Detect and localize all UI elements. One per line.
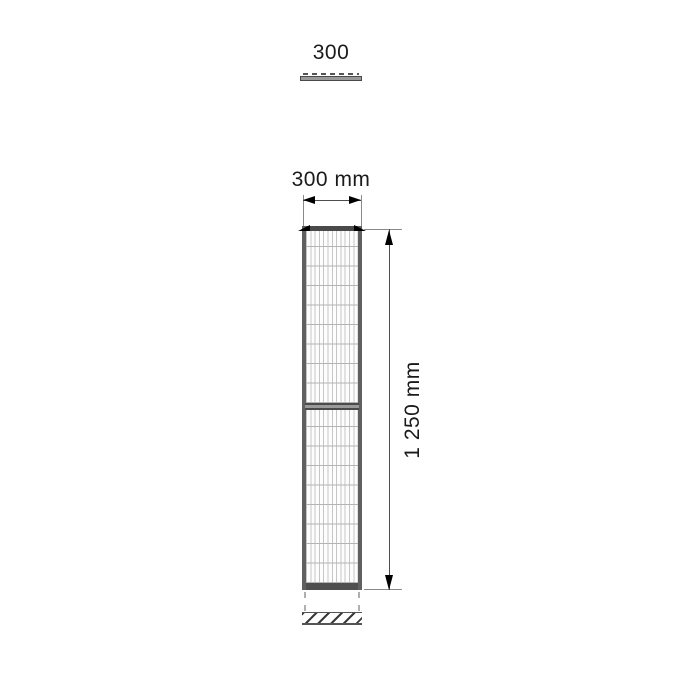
width-dimension-label: 300 mm [292, 169, 371, 191]
buried-outline-right [358, 592, 360, 611]
height-dimension-label: 1 250 mm [401, 361, 425, 458]
panel-mesh-upper [306, 231, 358, 403]
panel-top-left-bracket [298, 225, 310, 231]
top-view-wire-ticks [303, 73, 359, 75]
height-extension-line-bottom [364, 589, 402, 590]
height-dimension-line [389, 229, 390, 590]
width-extension-line-right [361, 195, 362, 226]
panel-mesh-lower [306, 410, 358, 583]
panel-bottom-rail [306, 583, 358, 590]
panel-middle-rail [305, 403, 359, 410]
top-view-panel-profile [300, 76, 362, 81]
top-view-width-label: 300 [313, 42, 350, 64]
arrow-left-icon [303, 196, 315, 204]
arrow-right-icon [349, 196, 361, 204]
mesh-panel [302, 226, 362, 590]
arrow-down-icon [385, 575, 393, 590]
ground-hatch [302, 612, 362, 625]
arrow-up-icon [385, 230, 393, 245]
buried-outline-left [304, 592, 306, 611]
panel-top-right-bracket [354, 225, 366, 231]
technical-drawing: 300 300 mm 1 250 mm [0, 0, 700, 700]
height-extension-line-top [364, 229, 402, 230]
